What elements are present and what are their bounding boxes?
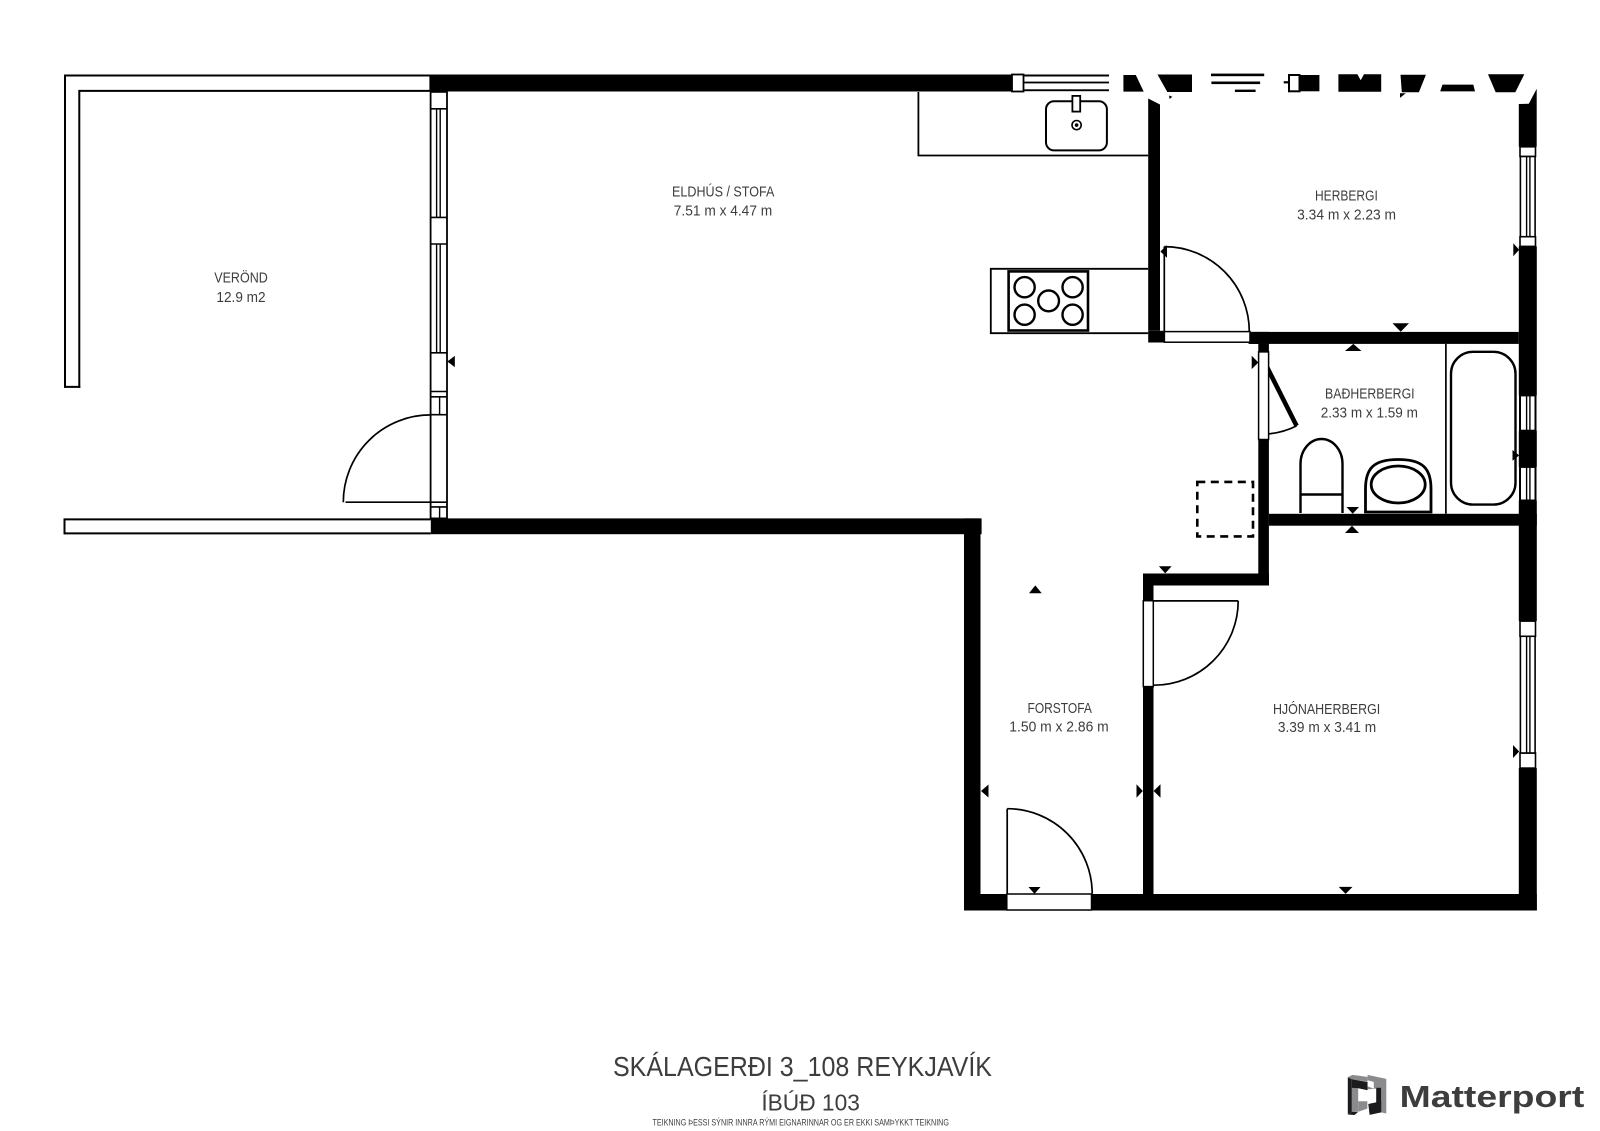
svg-text:FORSTOFA: FORSTOFA: [1028, 701, 1093, 717]
svg-text:1.50 m x 2.86 m: 1.50 m x 2.86 m: [1009, 719, 1108, 735]
svg-text:HJÓNAHERBERGI: HJÓNAHERBERGI: [1273, 701, 1380, 718]
svg-text:HERBERGI: HERBERGI: [1315, 189, 1378, 205]
svg-text:2.33 m x 1.59 m: 2.33 m x 1.59 m: [1321, 406, 1418, 422]
svg-text:3.39 m x 3.41 m: 3.39 m x 3.41 m: [1278, 720, 1376, 736]
svg-text:Matterport: Matterport: [1400, 1079, 1585, 1114]
svg-text:VERÖND: VERÖND: [214, 268, 268, 286]
svg-text:ELDHÚS / STOFA: ELDHÚS / STOFA: [672, 184, 775, 201]
svg-text:7.51 m x 4.47 m: 7.51 m x 4.47 m: [674, 204, 772, 220]
svg-text:ÍBÚÐ 103: ÍBÚÐ 103: [761, 1089, 860, 1115]
svg-text:SKÁLAGERÐI 3_108 REYKJAVÍK: SKÁLAGERÐI 3_108 REYKJAVÍK: [613, 1050, 992, 1082]
svg-text:TEIKNING ÞESSI SÝNIR INNRA RÝM: TEIKNING ÞESSI SÝNIR INNRA RÝMI EIGNARIN…: [652, 1117, 949, 1127]
svg-text:12.9 m2: 12.9 m2: [216, 290, 265, 306]
svg-text:3.34 m x 2.23 m: 3.34 m x 2.23 m: [1297, 208, 1396, 224]
svg-text:BAÐHERBERGI: BAÐHERBERGI: [1325, 387, 1415, 403]
